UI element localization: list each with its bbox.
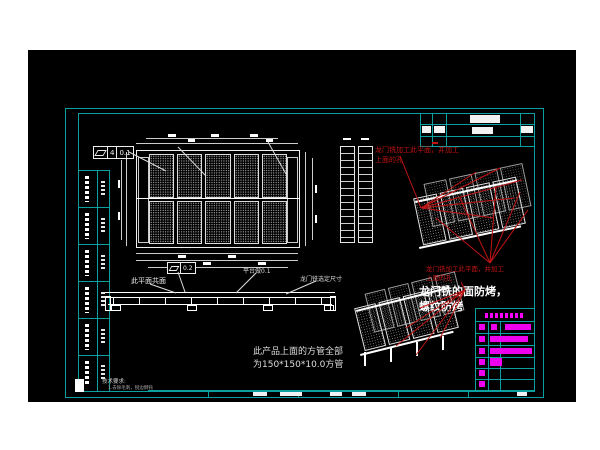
dim-text	[188, 139, 195, 142]
red-machining-note-top: 龙门铣加工此平面，并加工 上面的孔	[375, 146, 459, 165]
gdt-value: 0.2	[181, 263, 195, 273]
coplanar-label: 此平面共面	[131, 276, 166, 286]
perforated-panel	[177, 154, 202, 198]
title-block-top	[420, 113, 535, 147]
gdt-flatness-frame-main: 4 0.1	[93, 146, 134, 159]
platform-flatness-label: 平台做0.1	[243, 266, 271, 275]
gdt-zone: 4	[108, 147, 117, 158]
beam-post	[243, 297, 244, 305]
beam-foot	[263, 305, 273, 311]
table-cell-text	[490, 358, 502, 366]
end-column	[138, 157, 149, 243]
table-cell-text	[490, 336, 528, 342]
perforated-panel	[149, 154, 174, 198]
divider	[421, 136, 534, 137]
note-line: 上面的孔	[426, 274, 504, 283]
tech-requirements-item: 1.去除毛刺，锐边倒钝	[108, 385, 153, 391]
beam-post	[113, 297, 114, 305]
revision-mark	[432, 142, 438, 144]
table-cell-text	[479, 336, 485, 342]
beam-post	[269, 297, 270, 305]
flatness-icon	[94, 147, 108, 158]
divider	[488, 321, 489, 390]
table-cell-text	[479, 359, 485, 365]
perforated-panel	[177, 201, 202, 245]
dim-line	[121, 160, 122, 240]
note-line: 此产品上面的方管全部	[253, 346, 343, 359]
table-cell-text	[479, 370, 485, 376]
iso-post	[364, 352, 366, 366]
title-text-block	[472, 127, 493, 134]
dim-text	[315, 215, 317, 223]
section-view-channel	[340, 146, 355, 243]
strip-row	[79, 319, 109, 356]
title-text-block	[521, 126, 533, 133]
dim-text	[211, 134, 219, 137]
dim-line	[126, 152, 127, 246]
title-text-block	[434, 126, 445, 133]
dim-text	[168, 134, 176, 137]
title-text-block	[470, 115, 500, 123]
beam-foot	[111, 305, 121, 311]
dim-text	[315, 185, 317, 193]
parameter-table	[475, 308, 535, 391]
dim-text	[228, 255, 236, 258]
divider	[476, 321, 534, 322]
dim-line	[305, 152, 306, 246]
divider	[476, 368, 534, 369]
title-text-block	[422, 126, 431, 133]
bottom-title-strip	[148, 390, 533, 397]
end-column	[287, 157, 298, 243]
strip-filled-cell	[75, 379, 84, 392]
dim-line	[136, 253, 298, 254]
table-cell-text	[490, 348, 532, 354]
strip-text-block	[352, 392, 366, 396]
strip-row	[79, 171, 109, 208]
divider	[500, 321, 501, 390]
beam-post	[191, 297, 192, 305]
note-line: 龙门铣的面防烤，	[419, 284, 507, 299]
note-line: 龙门铣加工此平面，并加工	[375, 146, 459, 156]
dim-text	[250, 134, 258, 137]
iso-post	[416, 342, 418, 356]
section-view-channel	[358, 146, 373, 243]
red-machining-note-bottom: 龙门铣加工此平面，并加工 上面的孔	[426, 265, 504, 283]
beam-post	[165, 297, 166, 305]
divider	[476, 357, 534, 358]
side-view-base	[108, 304, 332, 305]
strip-text-block	[280, 392, 302, 396]
revision-strip	[78, 170, 110, 392]
perforated-panel	[205, 201, 230, 245]
dim-line	[312, 158, 313, 240]
dim-line	[136, 143, 298, 144]
divider	[476, 333, 534, 334]
strip-row	[79, 208, 109, 245]
table-cell-text	[505, 324, 531, 330]
tech-requirements-title: 技术要求:	[102, 377, 126, 385]
divider	[476, 345, 534, 346]
perforated-panel	[234, 154, 259, 198]
cad-viewport[interactable]: 4 0.1	[28, 50, 576, 402]
dim-text	[118, 180, 120, 188]
dim-text	[178, 255, 186, 258]
square-tube-note: 此产品上面的方管全部 为150*150*10.0方管	[253, 346, 343, 372]
beam-foot	[187, 305, 197, 311]
divider	[476, 379, 534, 380]
divider	[398, 391, 399, 397]
perforated-panel	[262, 201, 287, 245]
table-cell-text	[479, 381, 485, 387]
gantry-mill-size-label: 龙门铣选定尺寸	[300, 274, 342, 283]
cad-app-window: 4 0.1	[0, 0, 600, 450]
plan-view	[136, 150, 300, 248]
table-header-text	[485, 313, 525, 318]
iso-post	[390, 348, 392, 362]
divider	[468, 391, 469, 397]
divider	[208, 391, 209, 397]
strip-text-block	[330, 392, 342, 396]
perforated-panel	[149, 201, 174, 245]
dim-text	[118, 212, 120, 220]
iso-post	[442, 336, 444, 350]
dim-line	[146, 138, 278, 139]
flatness-icon	[168, 263, 181, 273]
table-cell-text	[479, 324, 485, 330]
strip-text-block	[253, 392, 267, 396]
divider	[421, 124, 534, 125]
dim-line	[136, 260, 298, 261]
dim-text	[266, 139, 273, 142]
beam-post	[217, 297, 218, 305]
beam-post	[295, 297, 296, 305]
beam-end-leg	[105, 296, 111, 311]
perforated-panel	[205, 154, 230, 198]
table-cell-text	[491, 324, 497, 330]
strip-row	[79, 245, 109, 282]
beam-post	[139, 297, 140, 305]
gdt-flatness-frame-side: 0.2	[167, 262, 196, 274]
dim-text	[361, 138, 369, 140]
divider	[446, 114, 447, 146]
note-line: 上面的孔	[375, 156, 459, 166]
dim-text	[203, 262, 211, 265]
note-line: 为150*150*10.0方管	[253, 359, 343, 372]
panel-grid	[149, 154, 287, 244]
isometric-view-top	[413, 165, 538, 270]
perforated-panel	[234, 201, 259, 245]
strip-text-block	[517, 392, 527, 396]
beam-post	[321, 297, 322, 305]
note-line: 龙门铣加工此平面，并加工	[426, 265, 504, 274]
dim-text	[343, 138, 351, 140]
beam-end-leg	[330, 296, 336, 311]
table-cell-text	[479, 348, 485, 354]
dim-text	[258, 262, 266, 265]
perforated-panel	[262, 154, 287, 198]
mid-rail	[137, 198, 299, 199]
